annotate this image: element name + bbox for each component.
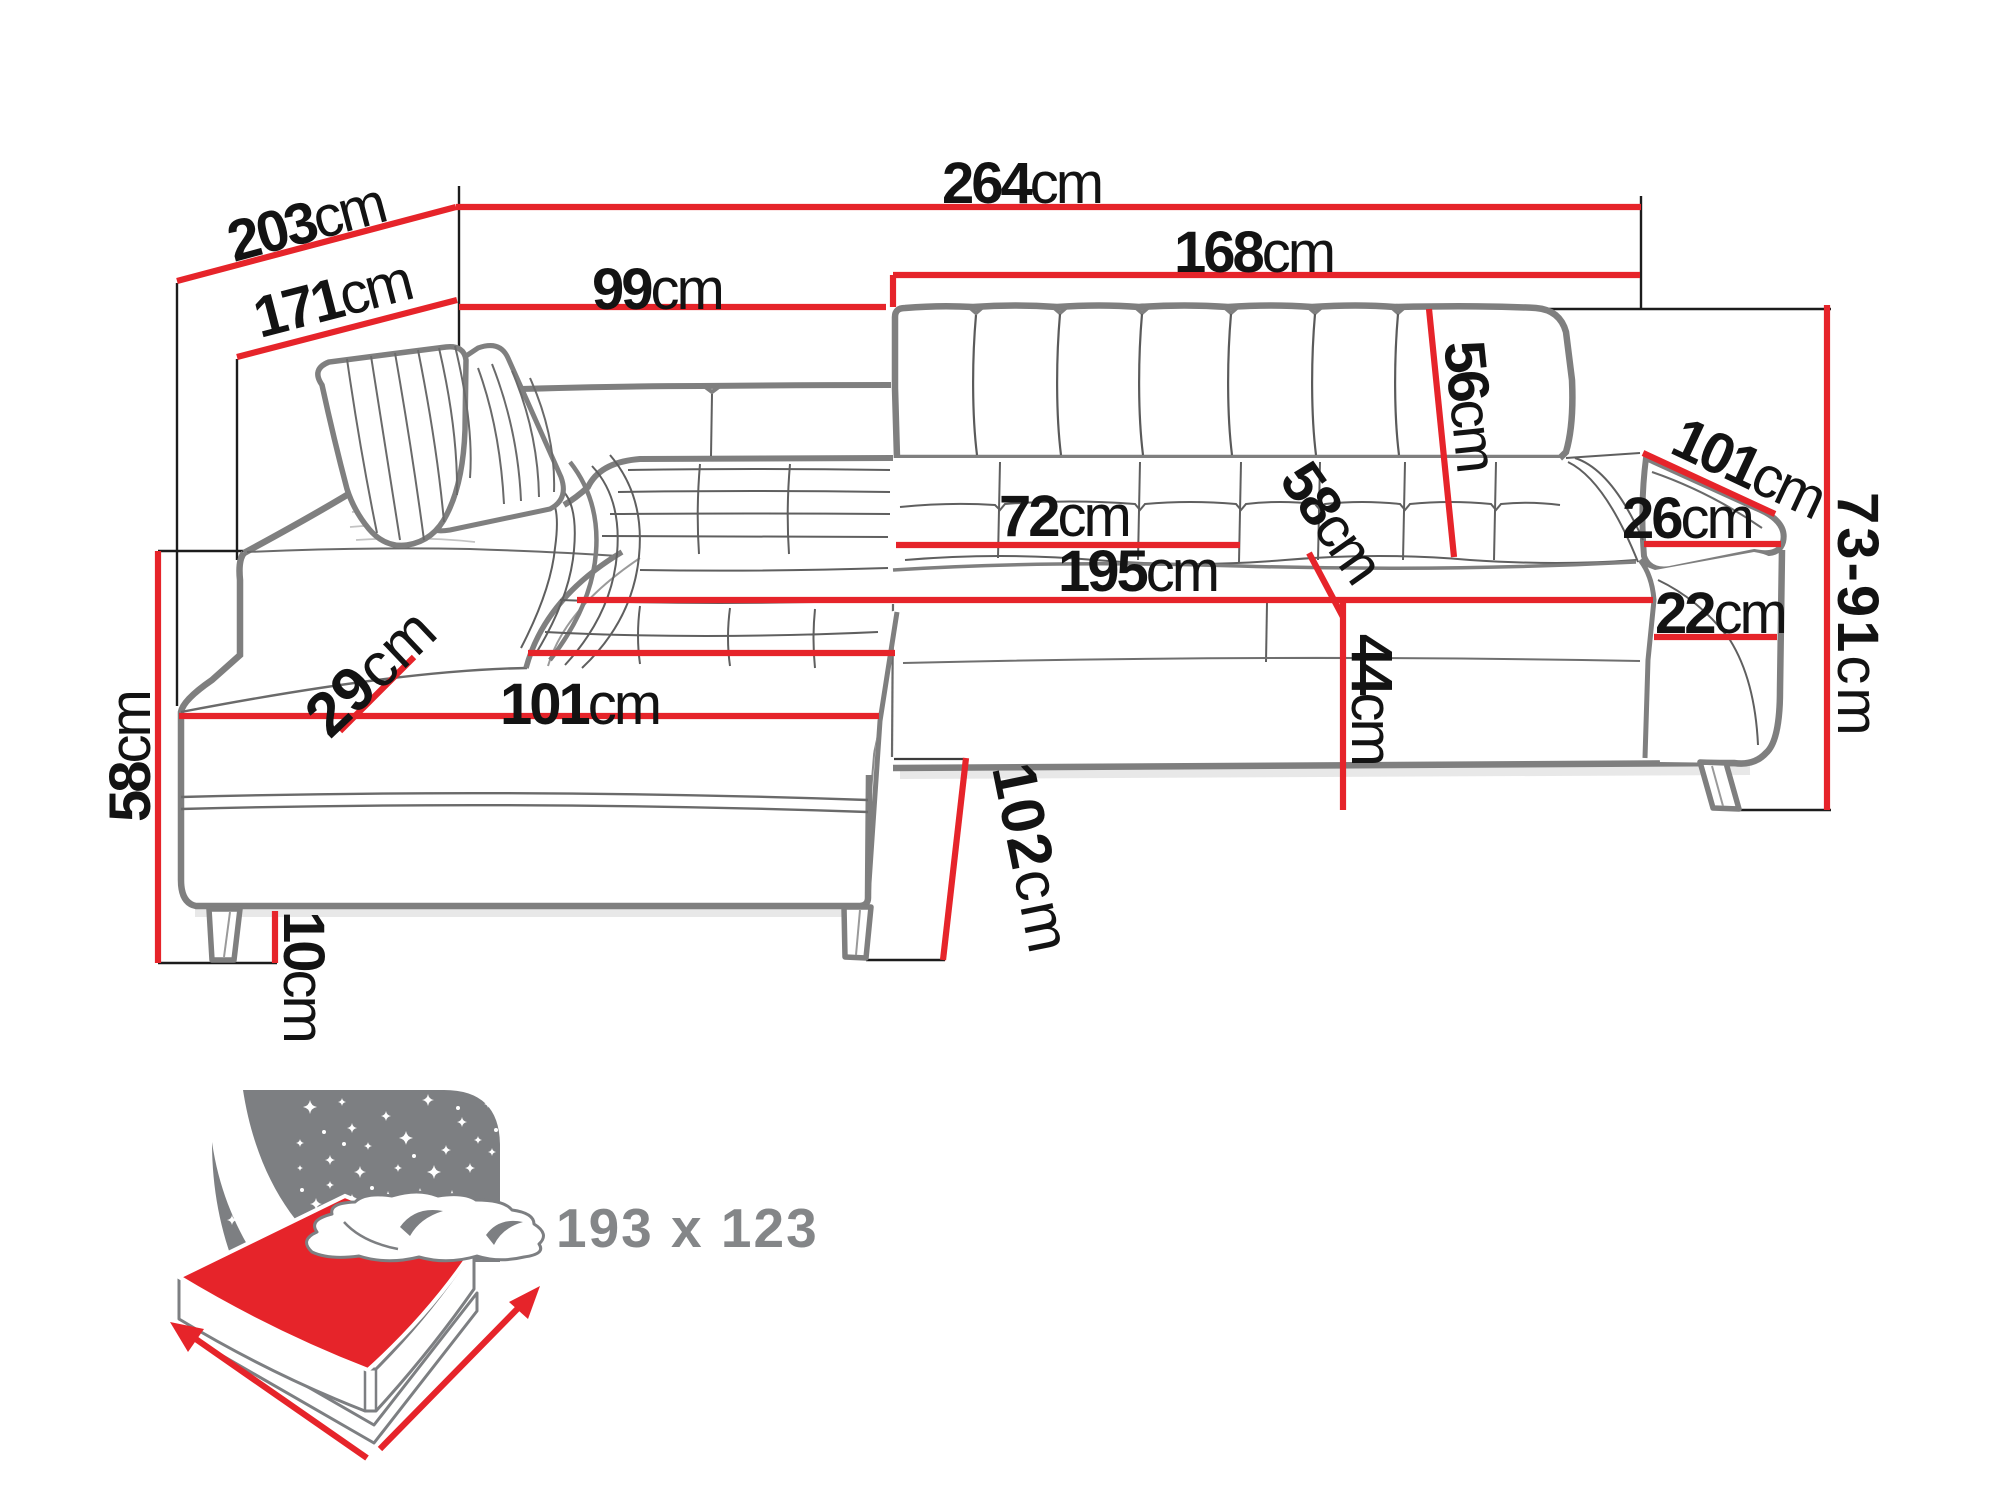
svg-text:22cm: 22cm bbox=[1655, 581, 1785, 646]
svg-text:193 x 123: 193 x 123 bbox=[556, 1197, 819, 1259]
svg-text:58cm: 58cm bbox=[98, 692, 163, 822]
svg-text:195cm: 195cm bbox=[1058, 539, 1217, 604]
svg-text:56cm: 56cm bbox=[1431, 338, 1509, 474]
svg-text:264cm: 264cm bbox=[942, 151, 1101, 216]
svg-text:99cm: 99cm bbox=[592, 257, 722, 322]
svg-text:44cm: 44cm bbox=[1339, 634, 1404, 764]
svg-text:73-91cm: 73-91cm bbox=[1825, 492, 1890, 739]
svg-text:168cm: 168cm bbox=[1174, 220, 1333, 285]
svg-text:10cm: 10cm bbox=[271, 911, 336, 1041]
svg-text:101cm: 101cm bbox=[500, 672, 659, 737]
